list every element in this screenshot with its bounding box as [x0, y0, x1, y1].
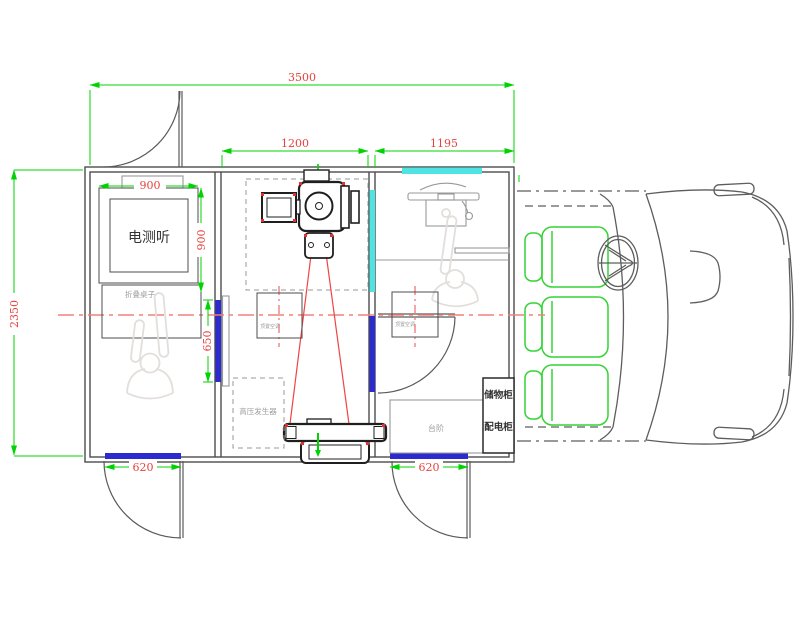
steering-wheel: [598, 236, 638, 290]
dim-total-length: 3500: [288, 71, 316, 84]
seat-middle: [525, 297, 608, 357]
leadglass-window: [370, 190, 376, 292]
floor-plan-svg: 电测听 折叠桌子: [0, 0, 800, 623]
mirror-bottom: [714, 427, 755, 440]
operator-door-opening: [370, 316, 376, 392]
dim-xray-room: 1200: [281, 137, 309, 150]
mirror-top: [714, 183, 755, 196]
floor-plan-canvas: 电测听 折叠桌子: [0, 0, 800, 623]
xray-beam-right: [323, 231, 349, 424]
operator-figure: [432, 209, 478, 306]
door-operator-room: [378, 314, 455, 393]
audiometry-label: 电测听: [128, 230, 170, 246]
storage-cabinet-label: 储物柜: [484, 389, 513, 401]
operator-room: 顶置空调 台阶 储物柜 配电柜: [376, 183, 514, 453]
window-slider: [223, 296, 230, 386]
dim-booth-width: 900: [140, 179, 161, 192]
door-top-left: [104, 91, 182, 167]
hv-generator-label: 高压发生器: [239, 406, 277, 416]
audiometry-room: 电测听 折叠桌子: [99, 176, 201, 399]
xray-machine: [261, 164, 359, 258]
seat-driver: [525, 227, 608, 287]
dim-left-door: 620: [133, 461, 154, 474]
dim-booth-depth: 900: [195, 230, 208, 251]
dim-window: 650: [201, 331, 214, 352]
top-wall-window: [402, 168, 482, 175]
seat-passenger: [525, 365, 608, 425]
dim-operator-room: 1195: [430, 137, 458, 150]
dim-body-width: 2350: [8, 300, 21, 328]
patient-figure: [127, 293, 173, 399]
power-cabinet-label: 配电柜: [484, 421, 513, 433]
partition-window-650: [216, 300, 222, 382]
bench: [455, 248, 509, 253]
left-door-opening: [105, 453, 181, 459]
hood-emblem: [690, 251, 720, 303]
svg-text:顶置空调: 顶置空调: [395, 321, 415, 328]
steps-label: 台阶: [428, 423, 444, 433]
operator-console: [408, 183, 479, 226]
xray-room: 高压发生器 顶置空调: [233, 164, 386, 463]
vehicle-front-outline: [517, 183, 793, 444]
svg-text:顶置空调: 顶置空调: [260, 323, 280, 330]
folding-table-label: 折叠桌子: [125, 289, 155, 299]
windshield-outer-line: [646, 194, 668, 440]
dim-right-door: 620: [419, 461, 440, 474]
right-door-opening: [390, 453, 468, 459]
cab-seats: [525, 227, 608, 425]
cabinet-box: 储物柜 配电柜: [483, 378, 514, 453]
